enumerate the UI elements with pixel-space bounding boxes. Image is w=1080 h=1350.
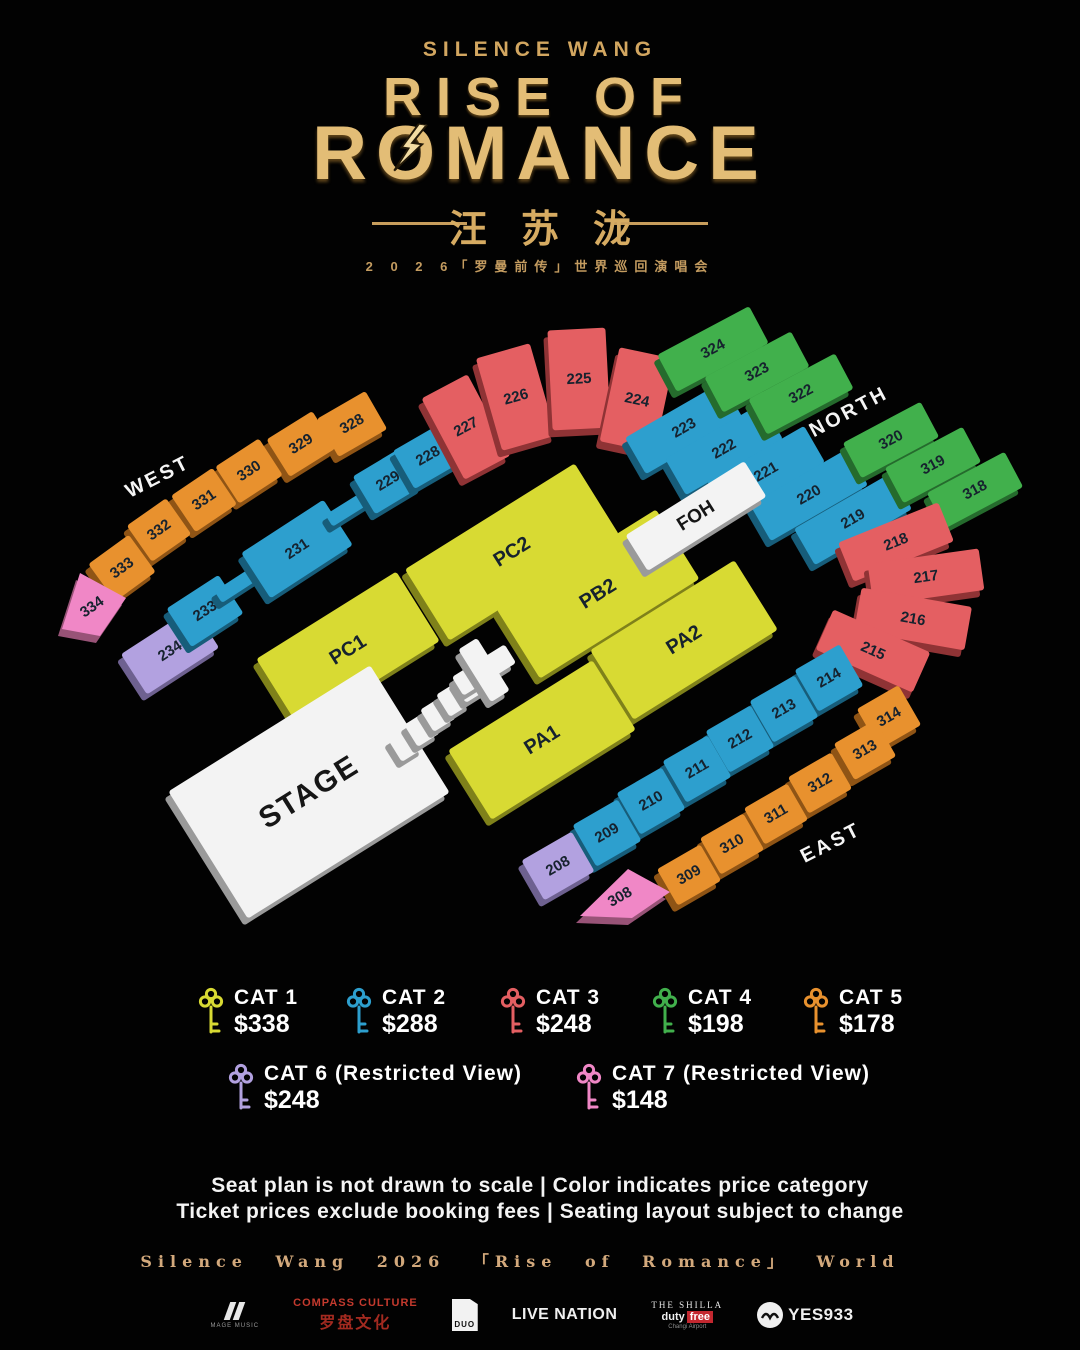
live-nation-logo: LIVE NATION xyxy=(512,1292,618,1338)
legend-item-cat-7-restricted-view: CAT 7 (Restricted View) $148 xyxy=(576,1062,870,1115)
legend-category-label: CAT 3 xyxy=(536,986,600,1010)
legend-item-cat-1: CAT 1 $338 xyxy=(198,986,298,1039)
duo-logo: DUO xyxy=(452,1292,478,1338)
mage-music-label: MAGE MUSIC xyxy=(210,1323,259,1329)
legend-item-cat-2: CAT 2 $288 xyxy=(346,986,446,1039)
legend-item-cat-3: CAT 3 $248 xyxy=(500,986,600,1039)
compass-culture-logo: COMPASS CULTURE 罗盘文化 xyxy=(293,1292,418,1338)
section-217-label: 217 xyxy=(912,567,939,587)
shilla-duty-free-logo: THE SHILLA duty free Changi Airport xyxy=(651,1292,723,1338)
key-icon xyxy=(198,986,224,1038)
legend-price: $148 xyxy=(612,1086,870,1115)
legend-category-label: CAT 4 xyxy=(688,986,752,1010)
poster: SILENCE WANG RISE OF ROMANCE 汪苏泷 2 0 2 6… xyxy=(0,0,1080,1350)
legend-item-cat-5: CAT 5 $178 xyxy=(803,986,903,1039)
mage-music-icon xyxy=(227,1302,242,1320)
legend-category-label: CAT 1 xyxy=(234,986,298,1010)
key-icon xyxy=(500,986,526,1038)
duo-icon: DUO xyxy=(452,1299,478,1331)
legend-category-label: CAT 5 xyxy=(839,986,903,1010)
key-icon xyxy=(652,986,678,1038)
legend-category-label: CAT 7 (Restricted View) xyxy=(612,1062,870,1086)
mediacorp-icon xyxy=(757,1302,783,1328)
shilla-duty-free: duty free xyxy=(662,1311,713,1323)
key-icon xyxy=(803,986,829,1038)
legend-item-cat-4: CAT 4 $198 xyxy=(652,986,752,1039)
compass-culture-cn: 罗盘文化 xyxy=(319,1309,391,1333)
shilla-airport: Changi Airport xyxy=(668,1324,706,1330)
section-225: 225 xyxy=(547,328,610,431)
duo-label: DUO xyxy=(454,1320,475,1329)
seating-map: 3283293303313323333342342332312292282272… xyxy=(0,0,1080,1350)
disclaimer-line2: Ticket prices exclude booking fees | Sea… xyxy=(0,1200,1080,1224)
tour-credit-line: Silence Wang 2026 「Rise of Romance」 Worl… xyxy=(0,1248,1060,1272)
key-icon xyxy=(576,1062,602,1114)
yes933-logo: YES933 xyxy=(757,1292,853,1338)
section-225-label: 225 xyxy=(566,370,592,388)
legend-price: $198 xyxy=(688,1010,752,1039)
disclaimer-line1: Seat plan is not drawn to scale | Color … xyxy=(0,1174,1080,1198)
compass-label-east: EAST xyxy=(797,818,865,867)
legend-category-label: CAT 6 (Restricted View) xyxy=(264,1062,522,1086)
compass-culture-en: COMPASS CULTURE xyxy=(293,1297,418,1309)
shilla-duty: duty xyxy=(662,1311,685,1323)
legend-item-cat-6-restricted-view: CAT 6 (Restricted View) $248 xyxy=(228,1062,522,1115)
legend-price: $338 xyxy=(234,1010,298,1039)
key-icon xyxy=(228,1062,254,1114)
shilla-name: THE SHILLA xyxy=(651,1300,723,1310)
legend-price: $178 xyxy=(839,1010,903,1039)
live-nation-label: LIVE NATION xyxy=(512,1306,618,1324)
legend-price: $248 xyxy=(264,1086,522,1115)
sponsor-logo-row: MAGE MUSIC COMPASS CULTURE 罗盘文化 DUO LIVE… xyxy=(0,1292,1072,1338)
legend-category-label: CAT 2 xyxy=(382,986,446,1010)
legend-price: $288 xyxy=(382,1010,446,1039)
legend-price: $248 xyxy=(536,1010,600,1039)
key-icon xyxy=(346,986,372,1038)
mage-music-logo: MAGE MUSIC xyxy=(210,1292,259,1338)
shilla-free: free xyxy=(687,1311,713,1323)
yes933-label: YES933 xyxy=(788,1305,853,1325)
